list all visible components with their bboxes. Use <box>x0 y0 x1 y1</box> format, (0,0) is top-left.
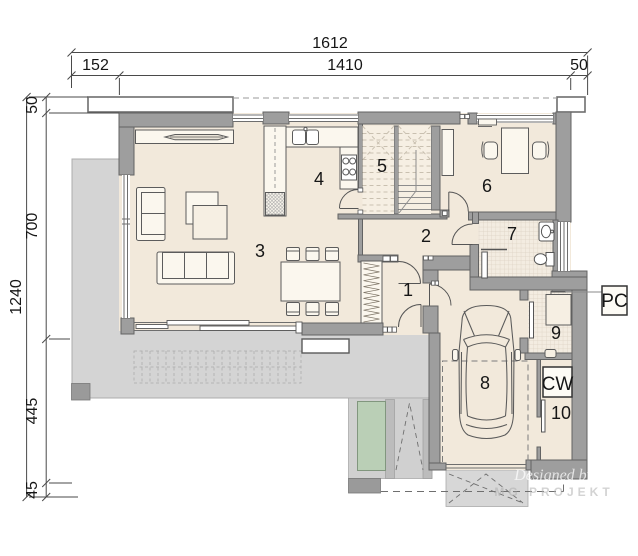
svg-text:7: 7 <box>507 224 517 244</box>
svg-text:50: 50 <box>24 96 41 114</box>
svg-text:1410: 1410 <box>327 57 363 74</box>
svg-text:10: 10 <box>551 403 571 423</box>
svg-text:45: 45 <box>24 481 41 499</box>
svg-text:445: 445 <box>24 398 41 425</box>
svg-text:PC: PC <box>601 291 627 312</box>
svg-text:6: 6 <box>482 176 492 196</box>
svg-text:50: 50 <box>570 57 588 74</box>
svg-text:4: 4 <box>314 169 324 189</box>
svg-text:700: 700 <box>24 213 41 240</box>
svg-text:2: 2 <box>421 226 431 246</box>
svg-text:1240: 1240 <box>8 279 25 315</box>
svg-text:8: 8 <box>480 373 490 393</box>
svg-text:1: 1 <box>403 280 413 300</box>
svg-text:Designed by: Designed by <box>513 467 594 484</box>
svg-text:MG PROJEKT: MG PROJEKT <box>494 485 613 499</box>
svg-text:1612: 1612 <box>312 35 348 52</box>
svg-text:3: 3 <box>255 241 265 261</box>
svg-text:5: 5 <box>377 156 387 176</box>
svg-text:CW: CW <box>542 374 574 395</box>
svg-text:152: 152 <box>82 57 109 74</box>
svg-text:9: 9 <box>551 323 561 343</box>
